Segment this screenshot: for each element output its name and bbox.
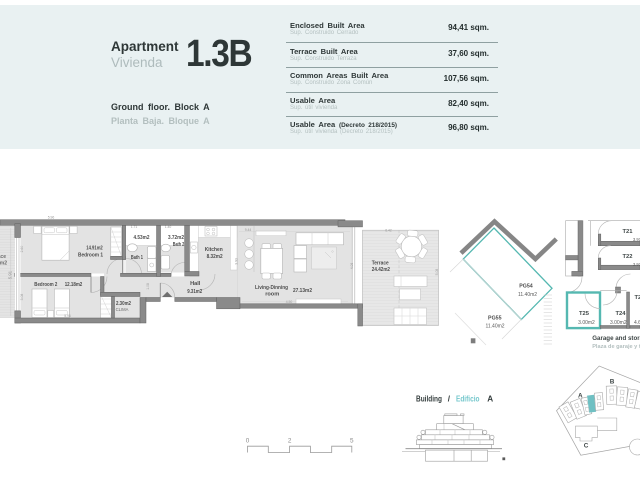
svg-text:Kitchen: Kitchen [205, 247, 224, 253]
svg-text:3.08: 3.08 [20, 294, 24, 301]
svg-text:4.08: 4.08 [350, 263, 354, 270]
svg-text:CLIMA: CLIMA [116, 307, 129, 312]
svg-text:2.30m2: 2.30m2 [116, 301, 131, 307]
svg-text:T24: T24 [616, 311, 627, 317]
svg-text:Bath 1: Bath 1 [131, 255, 143, 261]
svg-text:Bedroom 1: Bedroom 1 [78, 253, 103, 259]
svg-text:Living-Dinning: Living-Dinning [255, 285, 288, 291]
svg-text:T25: T25 [579, 311, 590, 317]
svg-text:3.93: 3.93 [235, 258, 239, 265]
svg-text:T22: T22 [623, 254, 633, 260]
svg-text:T23: T23 [635, 295, 640, 301]
svg-text:C: C [584, 443, 589, 450]
svg-text:Edificio: Edificio [456, 395, 480, 404]
svg-text:5: 5 [350, 438, 354, 445]
svg-text:2: 2 [288, 438, 292, 445]
svg-text:T21: T21 [623, 229, 634, 235]
svg-text:5.08: 5.08 [435, 269, 439, 276]
svg-text:3.00m2: 3.00m2 [578, 320, 595, 326]
svg-text:4.50: 4.50 [286, 300, 293, 304]
svg-text:Garage and storage: Garage and storage [592, 335, 640, 342]
svg-text:3.72m2: 3.72m2 [168, 235, 184, 241]
svg-text:6.42: 6.42 [385, 228, 392, 232]
svg-text:3.91: 3.91 [633, 237, 640, 242]
svg-text:room: room [265, 291, 279, 297]
svg-text:Building: Building [416, 395, 442, 404]
svg-text:m2: m2 [0, 260, 7, 266]
svg-text:1.71: 1.71 [131, 225, 138, 229]
svg-text:Bath 2: Bath 2 [173, 242, 185, 248]
svg-text:27.13m2: 27.13m2 [293, 288, 312, 294]
svg-text:14.91m2: 14.91m2 [86, 246, 103, 252]
svg-text:5.96: 5.96 [48, 215, 55, 219]
svg-text:PG54: PG54 [519, 283, 533, 289]
svg-text:A: A [487, 395, 493, 404]
svg-text:2.60: 2.60 [20, 246, 24, 253]
svg-text:11.40m2: 11.40m2 [518, 292, 537, 298]
svg-text:5.91: 5.91 [8, 270, 13, 279]
svg-text:3.91: 3.91 [633, 262, 640, 267]
svg-text:4.53m2: 4.53m2 [134, 235, 150, 241]
svg-text:12.18m2: 12.18m2 [65, 282, 83, 288]
svg-text:24.42m2: 24.42m2 [372, 267, 390, 273]
svg-text:1.08: 1.08 [146, 283, 150, 290]
svg-text:9.31m2: 9.31m2 [187, 289, 202, 295]
svg-text:8.32m2: 8.32m2 [207, 254, 223, 260]
svg-text:A: A [578, 392, 583, 399]
svg-text:B: B [610, 378, 615, 385]
svg-text:PG55: PG55 [488, 316, 502, 322]
svg-text:1.40: 1.40 [165, 225, 172, 229]
svg-text:Terrace: Terrace [372, 261, 389, 267]
svg-text:5.96: 5.96 [64, 314, 71, 318]
svg-text:0: 0 [246, 438, 250, 445]
svg-text:4.61: 4.61 [634, 320, 640, 326]
svg-text:ace: ace [0, 254, 6, 260]
svg-text:/: / [448, 395, 451, 404]
svg-text:9.44: 9.44 [245, 228, 252, 232]
svg-text:Hall: Hall [190, 281, 201, 287]
svg-text:11.40m2: 11.40m2 [485, 323, 504, 329]
svg-text:Bedroom 2: Bedroom 2 [34, 282, 57, 288]
svg-text:3.00m2: 3.00m2 [610, 320, 627, 326]
svg-text:Plaza de garaje y tras: Plaza de garaje y tras [592, 344, 640, 350]
